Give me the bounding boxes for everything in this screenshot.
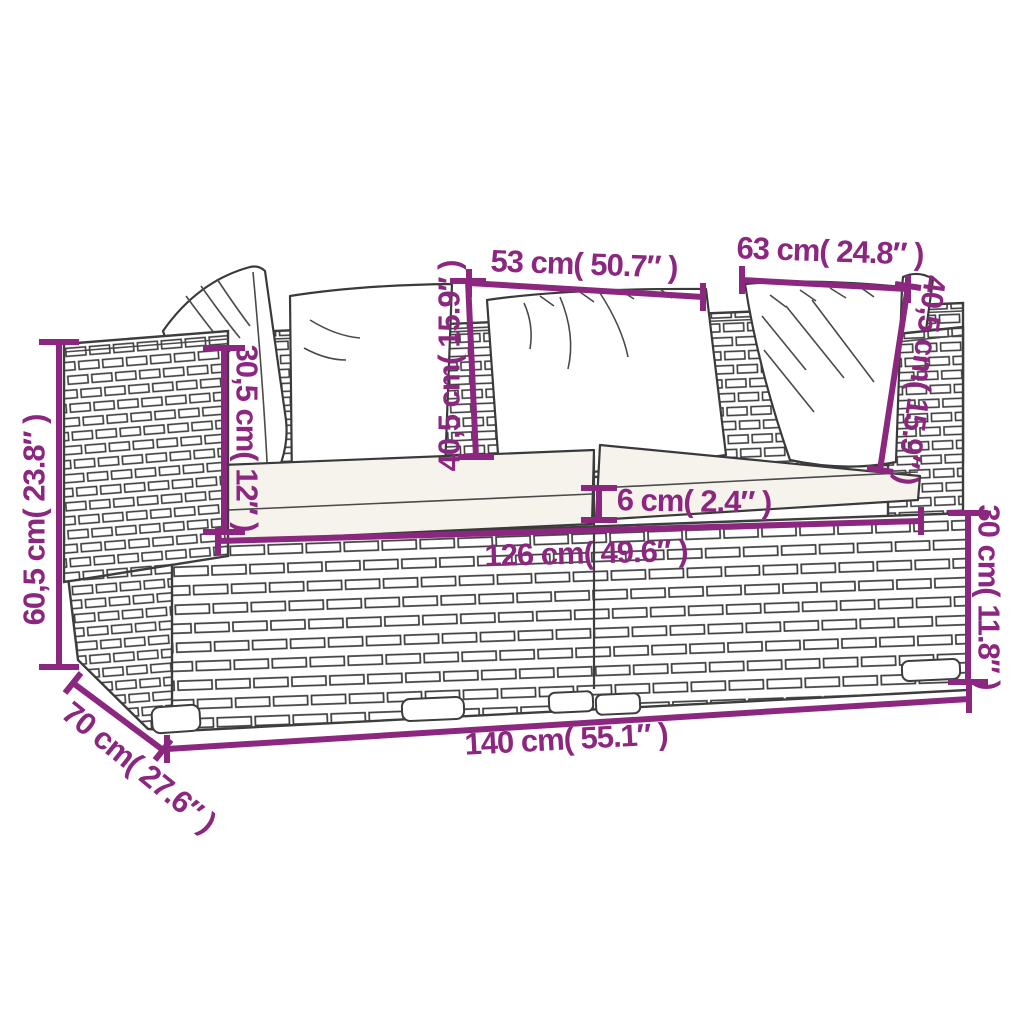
dim-label-back-pillow-center-width: 53 cm( 50.7″ ) bbox=[490, 245, 678, 283]
dim-label-overall-height: 60,5 cm( 23.8″ ) bbox=[19, 415, 50, 626]
dim-label-base-height: 30 cm( 11.8″ ) bbox=[974, 504, 1005, 689]
dim-label-seat-cushion-thickness: 6 cm( 2.4″ ) bbox=[616, 484, 771, 518]
sofa-illustration bbox=[0, 0, 1024, 1024]
dim-label-back-pillow-right-width: 63 cm( 24.8″ ) bbox=[736, 232, 924, 270]
dim-label-back-pillow-height-center: 40,5 cm( 15.9″ ) bbox=[434, 261, 465, 472]
diagram-canvas: 53 cm( 50.7″ ) 63 cm( 24.8″ ) 60,5 cm( 2… bbox=[0, 0, 1024, 1024]
dim-label-seat-width: 126 cm( 49.6″ ) bbox=[484, 535, 688, 571]
dim-label-armrest-height: 30,5 cm( 12″ ) bbox=[232, 345, 263, 532]
sofa bbox=[64, 267, 968, 734]
armrest-left bbox=[64, 331, 228, 582]
